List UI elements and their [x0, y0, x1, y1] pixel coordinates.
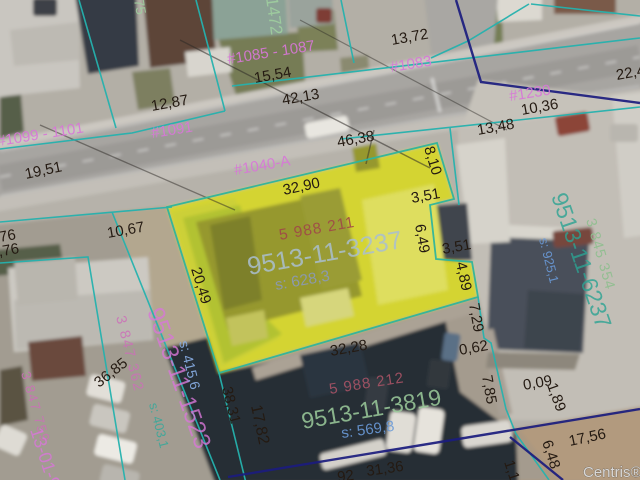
svg-text:Centris®: Centris®: [583, 464, 640, 480]
svg-text:92: 92: [336, 467, 355, 480]
